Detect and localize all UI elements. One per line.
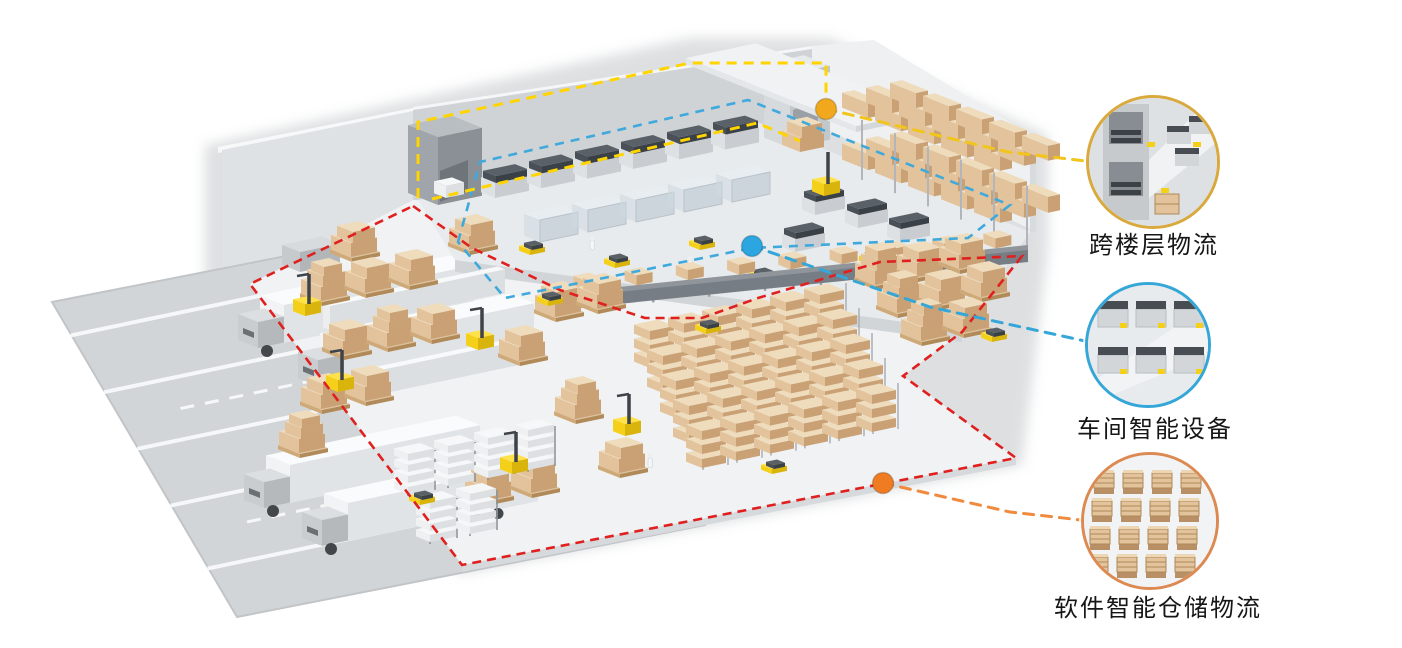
callout-circle-warehouse — [1081, 452, 1219, 590]
workshop-anchor-dot — [742, 236, 763, 257]
warehouse-anchor-dot — [873, 473, 894, 494]
callout-circle-cross-floor — [1086, 95, 1220, 229]
callout-label: 车间智能设备 — [1077, 409, 1233, 444]
smart-factory-illustration: 跨楼层物流 车间智能设备 软件智能仓储物流 — [0, 0, 1402, 648]
cross-floor-mini-view — [1089, 98, 1217, 226]
cross-floor-anchor-dot — [816, 99, 837, 120]
workshop-mini-view — [1088, 285, 1208, 405]
callout-label: 软件智能仓储物流 — [1054, 588, 1262, 623]
callout-circle-workshop — [1085, 282, 1211, 408]
warehouse-mini-view — [1084, 455, 1216, 587]
callout-label: 跨楼层物流 — [1089, 225, 1219, 260]
warehouse-connector-line — [883, 483, 1081, 520]
